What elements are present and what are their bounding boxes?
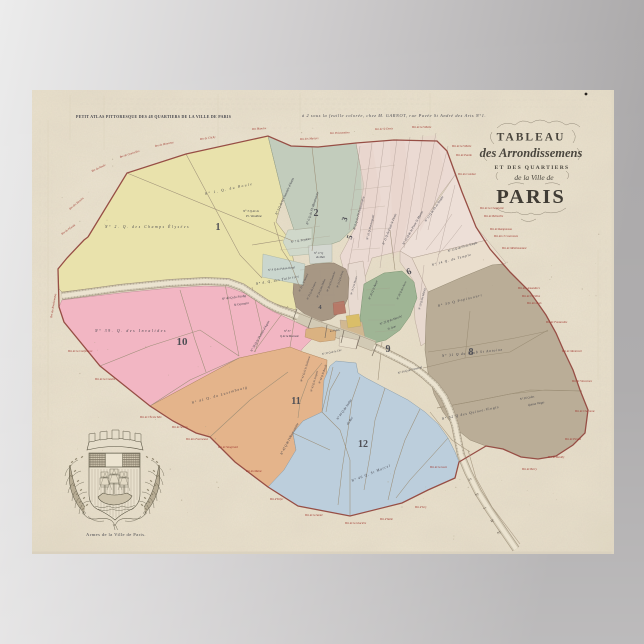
svg-text:PARIS: PARIS <box>496 186 566 208</box>
svg-text:N° 37: N° 37 <box>283 330 291 333</box>
svg-text:Bre de Charonne: Bre de Charonne <box>575 409 595 413</box>
svg-text:9: 9 <box>386 344 391 355</box>
svg-text:Bre de la Santé: Bre de la Santé <box>305 513 323 517</box>
svg-text:Bre de Montreuil: Bre de Montreuil <box>562 349 582 353</box>
svg-text:N° 17 Q: N° 17 Q <box>313 252 323 255</box>
svg-text:des Arrondissemens: des Arrondissemens <box>480 146 583 160</box>
svg-text:2: 2 <box>314 208 319 219</box>
svg-text:Bre de Reuilly: Bre de Reuilly <box>548 455 565 459</box>
svg-text:Bre d'Enfer: Bre d'Enfer <box>270 497 284 501</box>
svg-text:Bre des Rats: Bre des Rats <box>527 301 542 305</box>
svg-text:Bre de Fontarabie: Bre de Fontarabie <box>546 320 568 324</box>
svg-text:Bre de Ramponeau: Bre de Ramponeau <box>490 227 513 231</box>
svg-text:Bre de Vaugirard: Bre de Vaugirard <box>218 445 238 449</box>
svg-text:Bre des 3 Couronnes: Bre des 3 Couronnes <box>494 234 519 238</box>
svg-text:du Mail: du Mail <box>316 256 325 259</box>
svg-text:Bre de la Conférence: Bre de la Conférence <box>68 349 93 353</box>
svg-text:Bre de Ménilmontant: Bre de Ménilmontant <box>502 246 527 250</box>
svg-text:Bre de Pantin: Bre de Pantin <box>456 153 473 157</box>
svg-text:Bre Poissonnière: Bre Poissonnière <box>330 130 351 135</box>
svg-text:Bre des Fourneaux: Bre des Fourneaux <box>186 437 209 441</box>
svg-text:Bre de Belleville: Bre de Belleville <box>484 214 504 218</box>
svg-text:Bre de la Villette: Bre de la Villette <box>412 125 432 129</box>
svg-text:Bre de la Cunette: Bre de la Cunette <box>95 377 116 381</box>
svg-text:PETIT ATLAS PITTORESQUE DES 48: PETIT ATLAS PITTORESQUE DES 48 QUARTIERS… <box>76 115 231 119</box>
svg-text:Q de la Monnaie: Q de la Monnaie <box>280 335 300 338</box>
svg-text:Bre de la Gare: Bre de la Gare <box>430 465 448 469</box>
svg-text:Bre de la Glacière: Bre de la Glacière <box>345 521 367 525</box>
svg-text:Bre d'Italie: Bre d'Italie <box>380 517 394 521</box>
svg-text:Bre du Maine: Bre du Maine <box>246 469 263 473</box>
svg-text:ET DES QUARTIERS: ET DES QUARTIERS <box>495 165 570 171</box>
svg-text:Bre de l'École Mre: Bre de l'École Mre <box>140 415 162 419</box>
svg-text:Bre de la Villette: Bre de la Villette <box>452 144 472 148</box>
svg-text:Pl. Vendôme: Pl. Vendôme <box>245 214 263 218</box>
svg-text:Bre des Amandiers: Bre des Amandiers <box>518 286 541 290</box>
svg-text:Bre de Picpus: Bre de Picpus <box>565 437 582 441</box>
svg-text:Armes de la Ville de Paris.: Armes de la Ville de Paris. <box>86 532 146 537</box>
svg-text:1: 1 <box>216 222 221 233</box>
svg-text:Bre d'Ivry: Bre d'Ivry <box>415 505 427 509</box>
svg-text:N° 3 Q de la: N° 3 Q de la <box>242 209 259 213</box>
svg-text:Bre du Combat: Bre du Combat <box>458 172 476 176</box>
svg-text:11: 11 <box>291 396 300 407</box>
svg-text:Bre de la Chopinette: Bre de la Chopinette <box>480 206 505 210</box>
svg-text:Bre de Vincennes: Bre de Vincennes <box>572 379 593 383</box>
svg-text:Bre de St Denis: Bre de St Denis <box>375 126 394 131</box>
svg-text:Bre de l'Orillon: Bre de l'Orillon <box>522 294 541 298</box>
svg-text:de la Ville de: de la Ville de <box>514 173 554 182</box>
svg-text:10: 10 <box>177 336 189 348</box>
svg-text:N° 39. Q. des Invalides: N° 39. Q. des Invalides <box>94 329 167 333</box>
svg-text:TABLEAU: TABLEAU <box>497 132 566 144</box>
svg-text:8: 8 <box>469 347 474 358</box>
svg-text:Bre de Bercy: Bre de Bercy <box>522 467 538 471</box>
svg-text:N° 2. Q. des Champs Élysées: N° 2. Q. des Champs Élysées <box>104 224 190 229</box>
svg-text:12: 12 <box>358 439 368 450</box>
svg-text:Bre de Sèvres: Bre de Sèvres <box>172 425 189 429</box>
